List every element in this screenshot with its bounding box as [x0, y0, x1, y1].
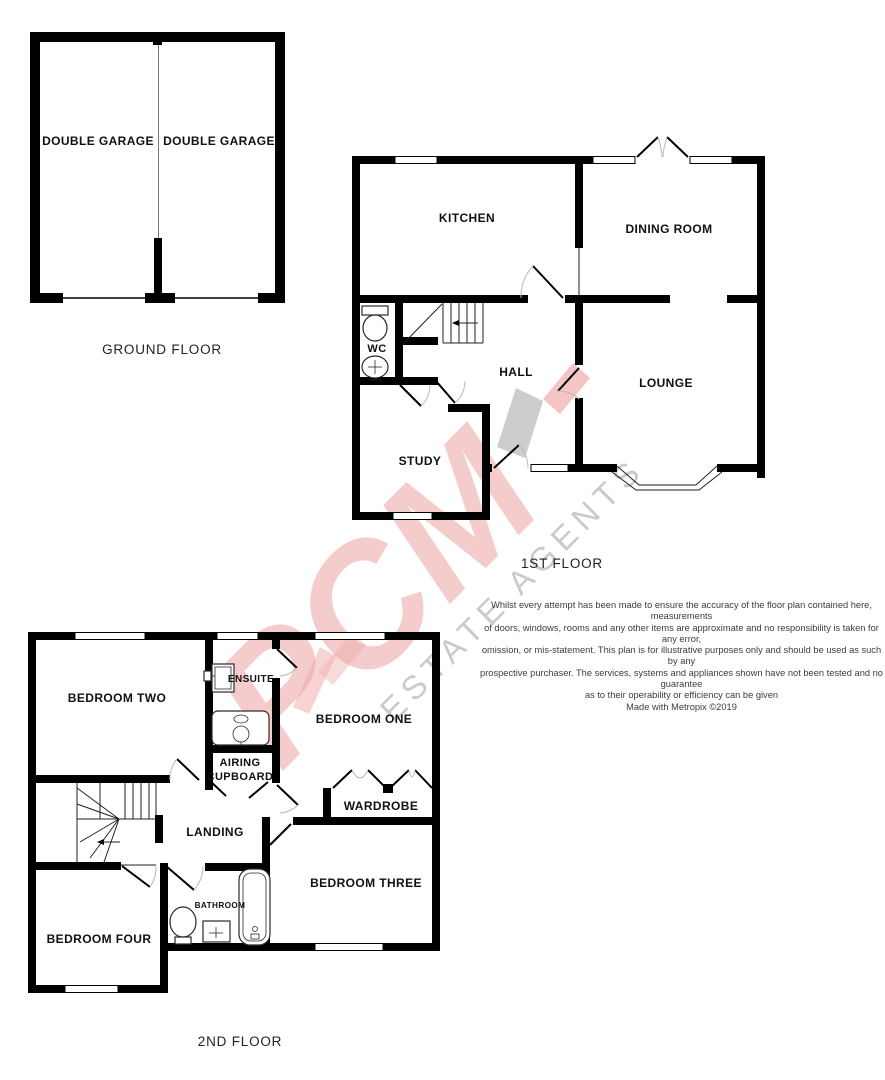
floorplan-drawing: PCM ESTATE AGENTS DOUBLE GARAGE DOUBLE G… — [0, 0, 885, 1080]
window — [65, 986, 118, 993]
french-doors — [637, 137, 688, 157]
room-label-hall: HALL — [499, 365, 533, 379]
floorplan-page: PCM ESTATE AGENTS DOUBLE GARAGE DOUBLE G… — [0, 0, 885, 1080]
second-floor-label: 2ND FLOOR — [198, 1034, 282, 1049]
room-label-bedroom-one: BEDROOM ONE — [316, 712, 412, 726]
disclaimer-credit: Made with Metropix ©2019 — [478, 702, 885, 713]
window — [315, 633, 385, 640]
room-label-wc: WC — [367, 343, 386, 355]
bathroom-door — [166, 866, 203, 890]
room-label-bedroom-two: BEDROOM TWO — [68, 691, 166, 705]
bedroom-two-door — [170, 759, 199, 780]
room-label-dining-room: DINING ROOM — [625, 222, 712, 236]
room-label-landing: LANDING — [186, 825, 243, 839]
garage-divider-stub — [154, 238, 162, 293]
disclaimer: Whilst every attempt has been made to en… — [478, 600, 885, 713]
ensuite-bath-icon — [212, 711, 269, 746]
room-label-study: STUDY — [399, 454, 442, 468]
room-label-bathroom: BATHROOM — [195, 901, 246, 910]
disclaimer-line: Whilst every attempt has been made to en… — [478, 600, 885, 623]
watermark-accent-shape — [497, 388, 543, 458]
window — [395, 157, 437, 164]
window — [393, 513, 432, 520]
basin-icon — [362, 356, 388, 380]
room-label-kitchen: KITCHEN — [439, 211, 495, 225]
disclaimer-line: as to their operability or efficiency ca… — [478, 690, 885, 701]
staircase — [77, 783, 156, 865]
ground-floor-label: GROUND FLOOR — [102, 342, 222, 357]
disclaimer-line: omission, or mis-statement. This plan is… — [478, 645, 885, 668]
window — [690, 157, 732, 164]
room-label-bedroom-four: BEDROOM FOUR — [47, 932, 152, 946]
window — [75, 633, 145, 640]
staircase — [398, 303, 483, 345]
kitchen-door — [521, 266, 563, 298]
room-label-ensuite: ENSUITE — [228, 674, 274, 685]
ground-floor-plan: DOUBLE GARAGE DOUBLE GARAGE GROUND FLOOR — [30, 32, 285, 357]
window — [315, 944, 383, 951]
toilet-icon — [362, 306, 388, 341]
toilet-icon — [170, 907, 196, 944]
window — [593, 157, 635, 164]
disclaimer-line: of doors, windows, rooms and any other i… — [478, 623, 885, 646]
window — [531, 465, 568, 472]
sink-icon — [203, 921, 230, 942]
garage-divider-stub — [153, 32, 162, 45]
banister-wall-stub — [155, 815, 163, 843]
room-label-garage-left: DOUBLE GARAGE — [42, 134, 154, 148]
wardrobe-doors — [333, 770, 432, 788]
bedroom-one-door — [277, 785, 298, 813]
room-label-garage-right: DOUBLE GARAGE — [163, 134, 275, 148]
wc-door — [400, 385, 430, 406]
disclaimer-line: prospective purchaser. The services, sys… — [478, 668, 885, 691]
room-label-bedroom-three: BEDROOM THREE — [310, 876, 422, 890]
bedroom-four-door — [122, 866, 156, 887]
window — [217, 633, 258, 640]
room-label-wardrobe: WARDROBE — [344, 799, 419, 813]
stairs-direction-arrow — [452, 320, 459, 326]
room-label-airing-cupboard: CUPBOARD — [207, 771, 274, 783]
room-label-lounge: LOUNGE — [639, 376, 693, 390]
first-floor-label: 1ST FLOOR — [521, 556, 603, 571]
room-label-airing-cupboard: AIRING — [220, 757, 261, 769]
